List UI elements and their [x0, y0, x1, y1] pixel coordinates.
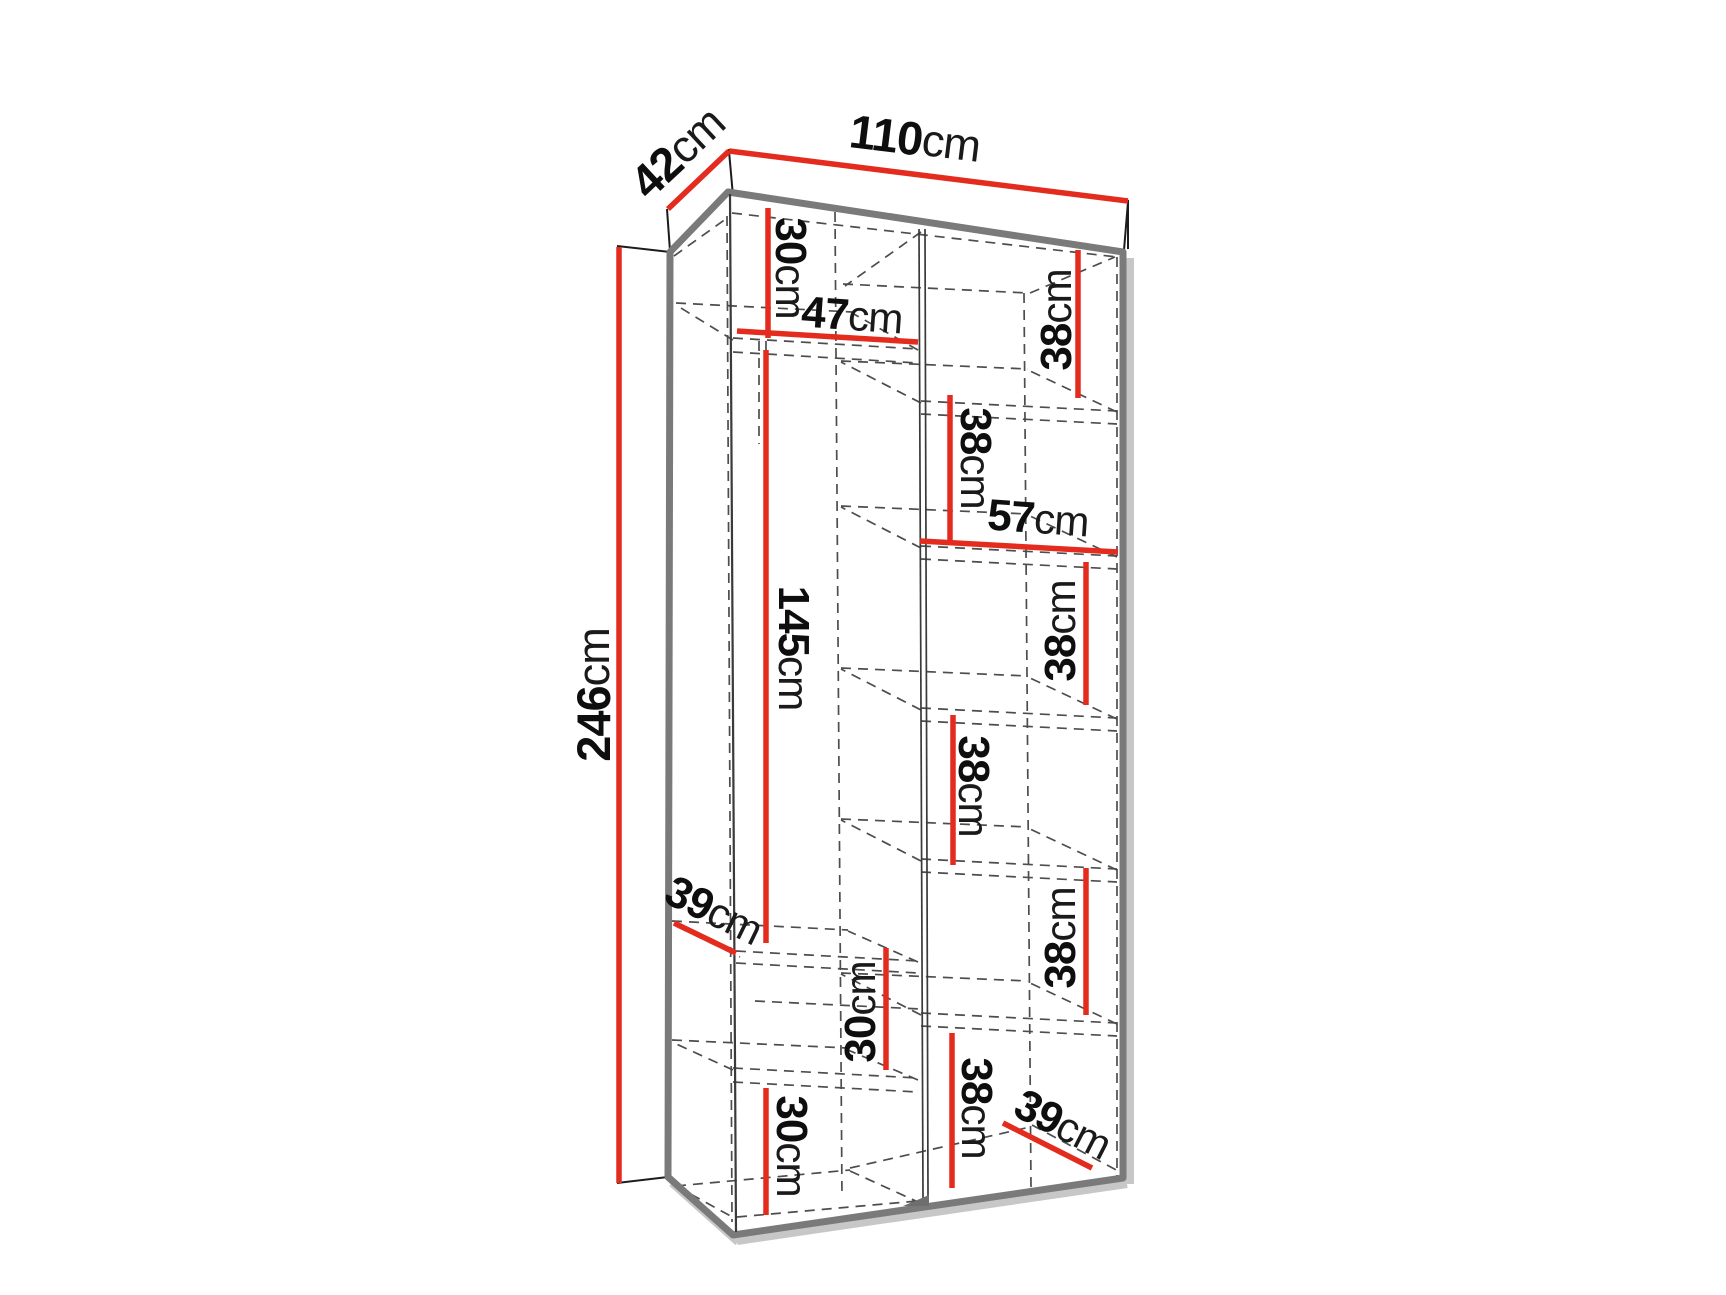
- dim-145-hanging: 145cm: [766, 350, 819, 943]
- wardrobe-dimension-diagram: 42cm110cm246cm30cm47cm145cm39cm30cm30cm3…: [0, 0, 1726, 1295]
- dim-47-shelf-label: 47cm: [800, 287, 904, 343]
- dim-30-middle: 30cm: [836, 948, 887, 1070]
- dim-38-right-4: 38cm: [950, 715, 999, 865]
- dimension-lines: 42cm110cm246cm30cm47cm145cm39cm30cm30cm3…: [567, 96, 1129, 1215]
- dim-38-right-5: 38cm: [1036, 868, 1087, 1015]
- dim-246-height: 246cm: [567, 247, 620, 1183]
- cabinet-shadow: [672, 258, 1130, 1242]
- dim-38-right-1-label: 38cm: [1032, 269, 1081, 370]
- dim-38-right-6: 38cm: [952, 1033, 1002, 1188]
- dim-30-bottom-left: 30cm: [766, 1088, 817, 1215]
- dim-110-width-label: 110cm: [847, 104, 983, 173]
- dim-246-height-label: 246cm: [567, 628, 620, 762]
- dim-38-right-4-label: 38cm: [950, 735, 999, 836]
- dim-38-right-3-label: 38cm: [1036, 580, 1085, 681]
- dim-38-right-6-label: 38cm: [953, 1057, 1002, 1158]
- dim-30-middle-label: 30cm: [836, 961, 885, 1062]
- dim-39-right-depth: 39cm: [1003, 1079, 1119, 1169]
- dim-47-shelf: 47cm: [737, 287, 918, 343]
- dim-39-left-depth: 39cm: [658, 866, 770, 954]
- diagram-canvas: 42cm110cm246cm30cm47cm145cm39cm30cm30cm3…: [0, 0, 1726, 1295]
- dim-30-bottom-left-label: 30cm: [768, 1095, 817, 1196]
- partition-foot-wedge: [903, 1195, 929, 1206]
- dim-57-shelf-label: 57cm: [986, 490, 1090, 546]
- dim-57-shelf-line: [920, 541, 1118, 552]
- dim-38-right-3: 38cm: [1036, 562, 1087, 705]
- dim-145-hanging-label: 145cm: [770, 586, 819, 711]
- dim-38-right-5-label: 38cm: [1036, 887, 1085, 988]
